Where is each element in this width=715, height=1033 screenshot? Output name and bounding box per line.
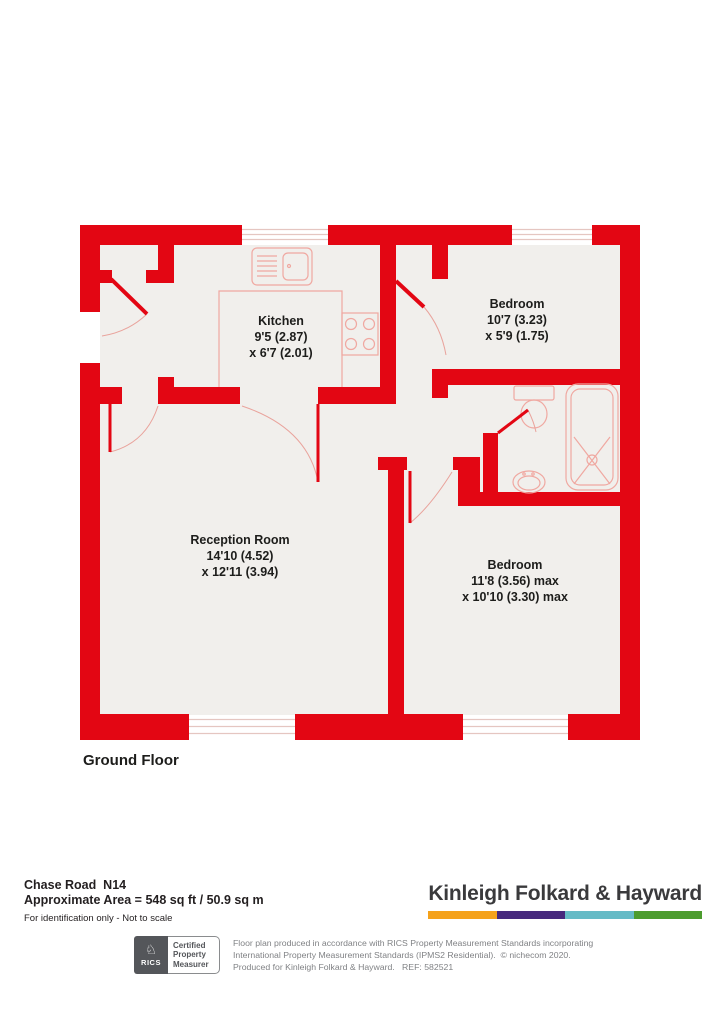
- room-dim: 11'8 (3.56) max: [462, 573, 568, 589]
- room-name: Bedroom: [485, 296, 548, 312]
- fine-print-line: Floor plan produced in accordance with R…: [233, 937, 593, 949]
- fine-print-line: Produced for Kinleigh Folkard & Hayward.…: [233, 961, 593, 973]
- room-label-reception: Reception Room 14'10 (4.52) x 12'11 (3.9…: [190, 532, 289, 580]
- room-label-bedroom2: Bedroom 11'8 (3.56) max x 10'10 (3.30) m…: [462, 557, 568, 605]
- kfh-wordmark: Kinleigh Folkard & Hayward: [428, 882, 702, 906]
- address-block: Chase Road N14 Approximate Area = 548 sq…: [24, 878, 264, 924]
- rics-lion-icon: ♘: [145, 944, 157, 957]
- room-name: Bedroom: [462, 557, 568, 573]
- rics-logo-box: ♘ RICS: [134, 936, 168, 974]
- brand-bar-purple: [497, 911, 565, 919]
- cert-line: Measurer: [173, 960, 219, 970]
- certified-measurer-box: Certified Property Measurer: [168, 936, 220, 974]
- room-name: Reception Room: [190, 532, 289, 548]
- brand-bar-green: [634, 911, 702, 919]
- disclaimer: For identification only - Not to scale: [24, 913, 264, 924]
- room-dim: 14'10 (4.52): [190, 548, 289, 564]
- rics-wordmark: RICS: [141, 958, 161, 967]
- rics-badge: ♘ RICS Certified Property Measurer: [134, 936, 220, 974]
- room-dim: 10'7 (3.23): [485, 312, 548, 328]
- floorplan-page: Kitchen 9'5 (2.87) x 6'7 (2.01) Bedroom …: [0, 0, 715, 1033]
- floor-title: Ground Floor: [83, 752, 179, 769]
- brand-bar-teal: [565, 911, 633, 919]
- address-line: Chase Road N14: [24, 878, 264, 893]
- fine-print: Floor plan produced in accordance with R…: [233, 937, 593, 973]
- room-label-kitchen: Kitchen 9'5 (2.87) x 6'7 (2.01): [249, 313, 312, 361]
- room-dim: 9'5 (2.87): [249, 329, 312, 345]
- kfh-logo: Kinleigh Folkard & Hayward: [428, 882, 702, 919]
- room-label-bedroom1: Bedroom 10'7 (3.23) x 5'9 (1.75): [485, 296, 548, 344]
- area-line: Approximate Area = 548 sq ft / 50.9 sq m: [24, 893, 264, 908]
- cert-line: Property: [173, 950, 219, 960]
- room-dim: x 6'7 (2.01): [249, 345, 312, 361]
- room-dim: x 5'9 (1.75): [485, 328, 548, 344]
- kfh-color-bars: [428, 911, 702, 919]
- room-name: Kitchen: [249, 313, 312, 329]
- floor-plan-drawing: [0, 0, 715, 860]
- room-dim: x 10'10 (3.30) max: [462, 589, 568, 605]
- fine-print-line: International Property Measurement Stand…: [233, 949, 593, 961]
- cert-line: Certified: [173, 941, 219, 951]
- room-dim: x 12'11 (3.94): [190, 564, 289, 580]
- brand-bar-orange: [428, 911, 496, 919]
